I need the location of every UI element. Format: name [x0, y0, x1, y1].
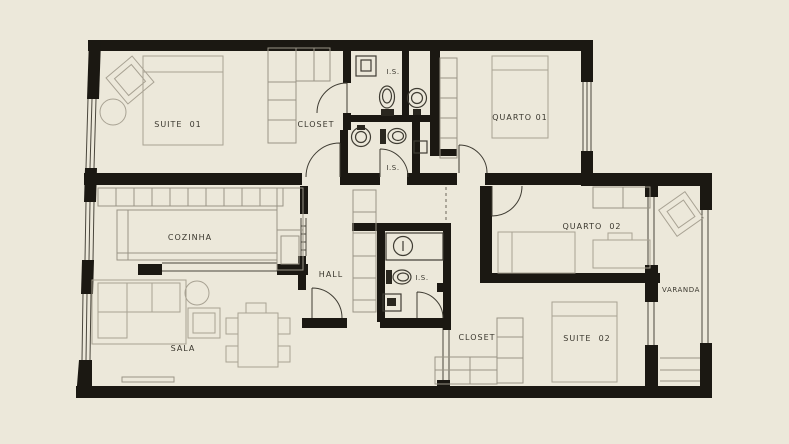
floor-plan: SUITE 01 CLOSET I.S. I.S. QUARTO 01 COZI…	[0, 0, 789, 444]
room-label-varanda: VARANDA	[662, 286, 700, 294]
room-label-closet-01: CLOSET	[297, 120, 334, 129]
room-label-hall: HALL	[319, 270, 343, 279]
room-label-is-mid: I.S.	[386, 164, 399, 172]
room-label-closet-02: CLOSET	[458, 333, 495, 342]
room-label-suite-01: SUITE 01	[154, 120, 202, 129]
room-label-quarto-02: QUARTO 02	[562, 222, 621, 231]
floor-plan-canvas: SUITE 01 CLOSET I.S. I.S. QUARTO 01 COZI…	[0, 0, 789, 444]
room-label-cozinha: COZINHA	[168, 233, 212, 242]
plan-background	[0, 0, 789, 444]
room-label-suite-02: SUITE 02	[563, 334, 611, 343]
room-label-is-top: I.S.	[386, 68, 399, 76]
room-label-sala: SALA	[171, 344, 196, 353]
room-label-quarto-01: QUARTO 01	[492, 113, 548, 122]
room-label-is-hall: I.S.	[415, 274, 428, 282]
